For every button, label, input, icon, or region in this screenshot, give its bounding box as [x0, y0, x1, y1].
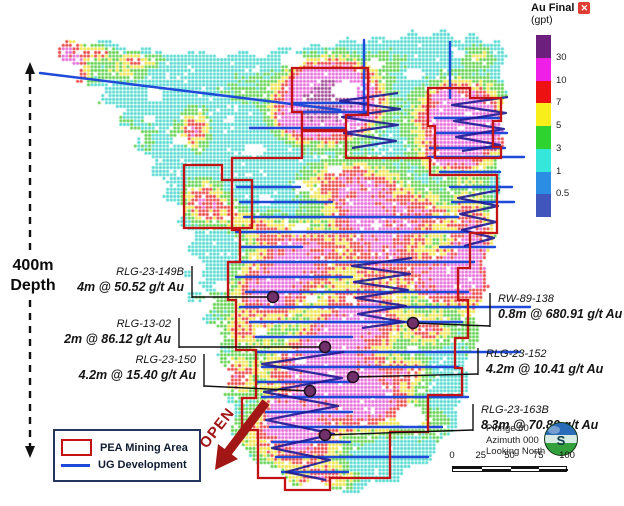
annotation-rlg-23-150: RLG-23-150 4.2m @ 15.40 g/t Au: [79, 354, 200, 383]
svg-text:S: S: [557, 433, 566, 448]
depth-label: 400m Depth: [4, 256, 62, 296]
colorbar-title: Au Final: [531, 2, 574, 14]
legend-item-ug: UG Development: [61, 459, 193, 471]
close-icon[interactable]: ✕: [578, 2, 590, 14]
map-legend: PEA Mining Area UG Development: [53, 429, 201, 482]
colorbar-unit: (gpt): [531, 14, 623, 26]
mining-long-section: Au Final ✕ (gpt) 301075310.5 400m Depth …: [0, 0, 624, 506]
grade-colorbar: Au Final ✕ (gpt) 301075310.5: [531, 2, 623, 220]
scale-bar: 0255075100: [452, 450, 567, 476]
annotation-rw-89-138: RW-89-138 0.8m @ 680.91 g/t Au: [494, 293, 622, 322]
annotation-rlg-23-152: RLG-23-152 4.2m @ 10.41 g/t Au: [482, 348, 603, 377]
colorbar-scale: 301075310.5: [531, 30, 623, 220]
legend-item-pea: PEA Mining Area: [61, 439, 193, 456]
ug-development-swatch: [61, 464, 90, 467]
annotation-rlg-23-149b: RLG-23-149B 4m @ 50.52 g/t Au: [77, 266, 188, 295]
pea-area-swatch: [61, 439, 92, 456]
annotation-rlg-13-02: RLG-13-02 2m @ 86.12 g/t Au: [64, 318, 175, 347]
